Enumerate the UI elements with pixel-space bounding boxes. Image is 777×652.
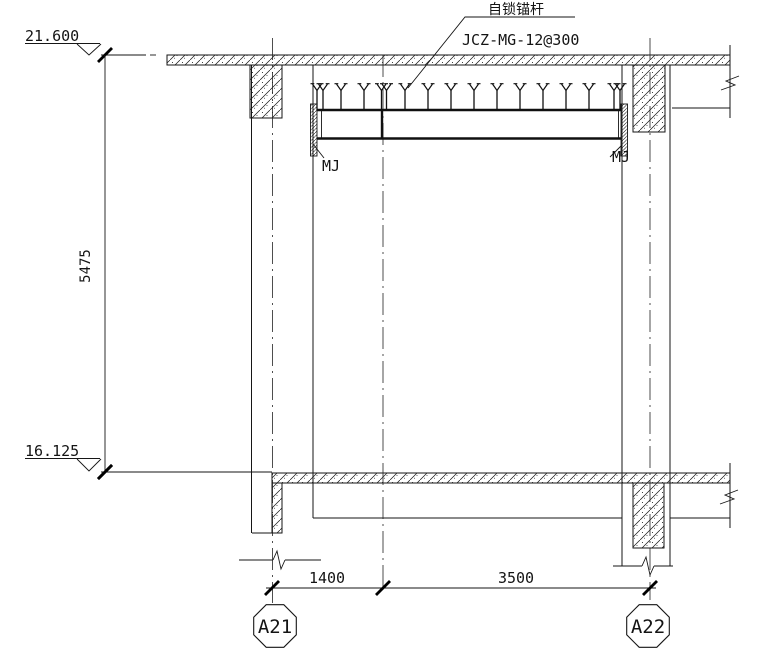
elevation-triangle-icon — [77, 459, 101, 471]
elevation-bottom-value: 16.125 — [25, 442, 79, 460]
bay-right-dimension-value: 3500 — [498, 569, 534, 587]
embed-plate-right-label: MJ — [612, 148, 630, 166]
elevation-triangle-icon — [77, 44, 101, 55]
grid-bubble-left-label: A21 — [258, 616, 292, 638]
vertical-dimension-value: 5475 — [78, 249, 94, 283]
anchor-name-label: 自锁锚杆 — [488, 2, 544, 18]
top-slab-section — [167, 55, 730, 65]
top-downstand-beam-left — [250, 65, 282, 118]
grid-bubble-a22: A22 — [627, 605, 670, 648]
bottom-column-stub-right — [633, 483, 664, 548]
horizontal-dimension-string: 1400 3500 — [265, 569, 657, 595]
anchor-callout: 自锁锚杆 JCZ-MG-12@300 — [408, 2, 579, 88]
steel-beam — [311, 104, 628, 156]
anchor-rods — [311, 84, 627, 110]
grid-bubble-a21: A21 — [254, 605, 297, 648]
bottom-slab-section — [272, 473, 730, 483]
vertical-dimension: 5475 — [78, 55, 112, 479]
bay-left-dimension-value: 1400 — [309, 569, 345, 587]
elevation-top-value: 21.600 — [25, 27, 79, 45]
bottom-wall-stub-left — [252, 483, 282, 533]
structural-detail-drawing: 自锁锚杆 JCZ-MG-12@300 MJ MJ 21.600 5475 16.… — [0, 0, 777, 652]
embed-plate-callout-right: MJ — [610, 145, 630, 166]
drawing-canvas: 自锁锚杆 JCZ-MG-12@300 MJ MJ 21.600 5475 16.… — [0, 0, 777, 652]
anchor-spec-label: JCZ-MG-12@300 — [462, 31, 579, 49]
embed-plate-left-label: MJ — [322, 157, 340, 175]
grid-bubble-right-label: A22 — [631, 616, 665, 638]
elevation-marker-top: 21.600 — [25, 27, 156, 62]
wall-break-line-left — [239, 551, 321, 569]
elevation-beam-lines — [313, 108, 730, 518]
top-downstand-beam-right — [633, 65, 665, 132]
elevation-marker-bottom: 16.125 — [25, 442, 272, 479]
callout-leader-line — [408, 17, 575, 88]
embed-plate-callout-left: MJ — [313, 144, 340, 175]
